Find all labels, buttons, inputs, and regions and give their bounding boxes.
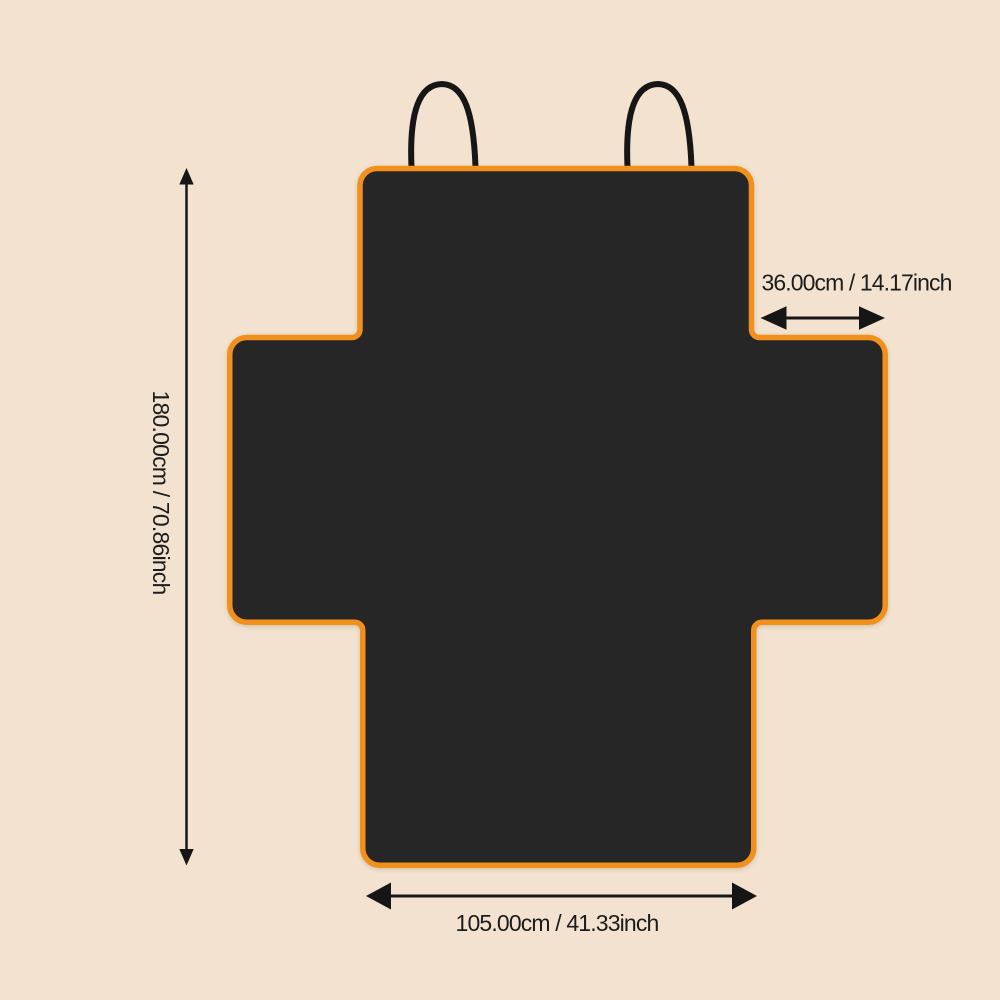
svg-text:36.00cm / 14.17inch: 36.00cm / 14.17inch (761, 270, 951, 296)
svg-text:105.00cm / 41.33inch: 105.00cm / 41.33inch (456, 910, 659, 936)
svg-text:180.00cm / 70.86inch: 180.00cm / 70.86inch (148, 391, 174, 595)
